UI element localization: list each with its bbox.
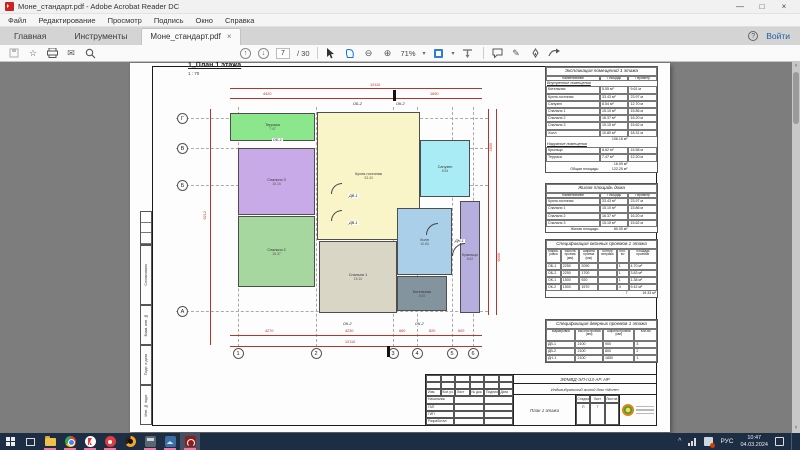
table-row: Терраса7.47 м²12.20 м (546, 154, 657, 161)
table-cell: 1 (634, 355, 657, 362)
table-cell: 1570 (579, 284, 598, 291)
stage-label: Стадия (576, 395, 590, 403)
taskbar-app-chrome[interactable] (60, 433, 80, 450)
table-cell: Площадь проемов (629, 249, 657, 263)
taskbar-app-calculator-app[interactable] (140, 433, 160, 450)
table-cell: ОБ-2 (546, 270, 561, 277)
dimension-text: 660 (399, 329, 405, 333)
dimension-text: 12110 (370, 83, 380, 87)
table-cell: 15.10 м² (600, 108, 629, 115)
table-cell: Подпись (484, 389, 499, 396)
table-cell: 10.80 м² (600, 130, 629, 137)
table-cell: Спальня 1 (546, 108, 600, 115)
table-row: ДН-1210018501 (546, 355, 657, 362)
table-cell: Спальня 2 (546, 115, 600, 122)
table-cell: 12.70 м (628, 101, 657, 108)
tray-chevron-icon[interactable]: ^ (678, 438, 681, 445)
side-strip-label: Согласовано (144, 264, 148, 286)
table-cell (579, 291, 598, 296)
table-cell: 8.54 м² (600, 101, 629, 108)
table-cell: 2250 (561, 270, 580, 277)
tab-home[interactable]: Главная (0, 27, 60, 45)
title-block: Изм.Кол.уч.Лист№ док.ПодписьДатаНачальни… (425, 374, 657, 426)
table-cell (484, 404, 514, 411)
taskbar-app-acrobat-reader[interactable] (180, 433, 200, 450)
role-cell: ГИП (426, 411, 454, 418)
scrollbar-thumb[interactable] (793, 72, 799, 124)
yandex-browser-icon (85, 436, 96, 447)
opening-label: ОБ-1 (272, 138, 283, 142)
table-cell: 3.83 м² (629, 270, 657, 277)
table-cell (629, 167, 658, 172)
table-cell: Ширина проема (мм) (603, 329, 634, 341)
table-cell: 1500 (561, 277, 580, 284)
table-cell: № док. (470, 389, 485, 396)
orange-app-icon (125, 436, 136, 447)
table-cell: Лист (455, 389, 470, 396)
grid-bubble-row: Г (177, 113, 188, 124)
opening-label: ОК-2 (342, 322, 353, 326)
window-title: Моне_стандарт.pdf - Adobe Acrobat Reader… (18, 2, 179, 11)
menu-item[interactable]: Подпись (148, 14, 190, 27)
stage-value: П (576, 403, 590, 425)
table-cell: 7 (617, 291, 629, 296)
table-row: Спецификация дверных проемов 1 этажа (546, 320, 657, 329)
table-cell: 1.38 м² (629, 277, 657, 284)
sheet-value: 7 (590, 403, 604, 425)
table-cell: 1 (617, 263, 629, 270)
table-cell (454, 404, 484, 411)
room-терраса: Терраса7.47 (230, 113, 315, 141)
table-cell: Ширина проема (мм) (579, 249, 598, 263)
room-спальня-3: Спальня 315.15 (238, 148, 315, 215)
window-title-bar: Моне_стандарт.pdf - Adobe Acrobat Reader… (0, 0, 800, 14)
dimension-text: 9212 (203, 211, 207, 219)
role-cell: Разработал (426, 418, 454, 425)
opening-label: ДВ-1 (348, 221, 359, 225)
table-row: ОК-21500157049.42 м² (546, 284, 657, 291)
table-cell: Маркировка (546, 329, 575, 341)
table-cell: Кухня-гостиная (546, 198, 600, 205)
table-cell: 15.58 м (628, 147, 657, 154)
zoom-caret-icon[interactable]: ▾ (423, 50, 426, 57)
object-name: Индивидуальный жилой дом «Моне» (514, 384, 656, 395)
dimension-text: 1690 (430, 92, 438, 96)
tab-tools[interactable]: Инструменты (60, 27, 141, 45)
next-page-icon[interactable]: ↓ (258, 48, 269, 59)
table-cell: 9.61 м (628, 86, 657, 93)
taskbar-app-yandex-browser[interactable] (80, 433, 100, 450)
table-row: ДВ-121009003 (546, 341, 657, 348)
print-icon[interactable] (46, 47, 58, 60)
signature-row: ГИП (426, 411, 513, 418)
table-cell: 122.25 м² (600, 167, 629, 172)
room-area-label: 7.47 (269, 127, 276, 131)
document-code: ЗФМВД-ЭП-п13-АР. НР (514, 375, 656, 384)
table-row: Кухня-гостиная33.43 м²23.97 м (546, 94, 657, 101)
network-icon[interactable] (688, 438, 697, 446)
vertical-scrollbar[interactable]: ˄ ˅ (792, 62, 800, 433)
dimension-text: 12110 (345, 340, 355, 344)
table-cell: Санузел (546, 101, 600, 108)
menu-item[interactable]: Файл (2, 14, 32, 27)
table-cell: 3 (634, 341, 657, 348)
select-tool-icon[interactable] (325, 47, 337, 60)
close-button[interactable]: × (773, 0, 795, 13)
table-cell: 2100 (575, 341, 603, 348)
grid-bubble-column: 1 (233, 348, 244, 359)
dimension-text: 600 (458, 329, 464, 333)
table-cell (426, 382, 441, 389)
room-area-label: 15.15 (272, 182, 281, 186)
table-cell: 2090 (579, 263, 598, 270)
table-cell (598, 263, 617, 270)
dimension-line (230, 98, 482, 99)
company-text-lines (636, 406, 654, 415)
table-cell: 33.43 м² (600, 94, 629, 101)
table-cell (484, 382, 499, 389)
room-санузел: Санузел8.54 (420, 140, 470, 197)
table-cell: 16.37 м² (600, 115, 629, 122)
table-row: Спальня 315.15 м²15.62 м (546, 122, 657, 129)
room-спальня-2: Спальня 216.37 (238, 216, 315, 287)
title-block-signatures: Изм.Кол.уч.Лист№ док.ПодписьДатаНачальни… (426, 375, 514, 425)
dimension-text: 6000 (497, 253, 501, 261)
signature-row: Начальник (426, 396, 513, 403)
sheet-title: 1_План 1 этажа (188, 62, 241, 69)
table-row: Котельная5.55 м²9.61 м (546, 86, 657, 93)
table-cell: ДН-1 (546, 355, 575, 362)
signature-row: Разработал (426, 418, 513, 425)
table-row: Спальня 115.10 м²15.86 м (546, 108, 657, 115)
room-area-label: 8.62 (467, 257, 474, 261)
room-area-label: 16.37 (272, 252, 281, 256)
toolbar-file-group: ☆ ✉ (8, 45, 96, 61)
table-cell: 80.05 м² (600, 227, 629, 232)
table-cell: ОК-2 (546, 284, 561, 291)
side-strip-label: Взам. инв. № (144, 314, 148, 336)
table-cell: 16.20 м (628, 213, 657, 220)
table-row: Спальня 115.10 м²15.86 м (546, 205, 657, 212)
role-cell: Начальник (426, 396, 454, 403)
table-cell: 16.20 м (628, 115, 657, 122)
grid-bubble-column: 6 (468, 348, 479, 359)
room-спальня-1: Спальня 115.10 (319, 241, 397, 313)
taskbar-app-blue-app[interactable] (160, 433, 180, 450)
table-cell: 15.15 м² (600, 122, 629, 129)
file-explorer-icon (45, 438, 56, 446)
menu-item[interactable]: Редактирование (32, 14, 101, 27)
opening-label: ОК-2 (414, 322, 425, 326)
toolbar: ☆ ✉ ↑ ↓ 7 / 30 ⊖ ⊕ 71% ▾ ▾ (0, 45, 800, 62)
table-row: ОК-1150092011.38 м² (546, 277, 657, 284)
table-cell: Кол- во (617, 249, 629, 263)
table-row: ОБ-22250170013.83 м² (546, 270, 657, 277)
table-cell: 1850 (603, 355, 634, 362)
explication-table: Экспликация помещений 1 этажаНаименовани… (545, 66, 658, 173)
zoom-out-icon[interactable]: ⊖ (363, 47, 375, 60)
menu-item[interactable]: Окно (190, 14, 219, 27)
search-icon[interactable] (84, 47, 96, 60)
table-row: Спальня 315.15 м²15.62 м (546, 220, 657, 227)
table-row: 719.33 м² (546, 291, 657, 296)
dimension-line (496, 109, 497, 315)
table-cell: Кол.уч. (441, 389, 456, 396)
toolbar-divider (317, 47, 318, 59)
table-row: ОБ-12250209014.70 м² (546, 263, 657, 270)
calculator-app-icon (145, 436, 156, 447)
sheet-scale: 1 : 70 (188, 71, 199, 76)
table-cell: Спальня 3 (546, 122, 600, 129)
touch-mode-icon[interactable] (462, 47, 474, 60)
table-cell: 19.33 м² (629, 291, 657, 296)
minimize-button[interactable]: — (729, 0, 751, 13)
door-spec-table: Спецификация дверных проемов 1 этажаМарк… (545, 319, 658, 363)
table-row: Холл10.80 м²18.31 м (546, 130, 657, 137)
table-cell: Спальня 3 (546, 220, 600, 227)
page-number-input[interactable]: 7 (276, 48, 290, 59)
table-cell (441, 382, 456, 389)
email-icon[interactable]: ✉ (65, 47, 77, 60)
clock-date: 04.03.2024 (740, 442, 768, 449)
table-cell: 15.86 м (628, 205, 657, 212)
table-cell: 900 (603, 341, 634, 348)
document-viewport[interactable]: 1_План 1 этажа 1 : 70 123456ГВБАТерраса7… (0, 62, 800, 433)
table-cell: Высота проема (мм) (561, 249, 580, 263)
table-cell: Холл (546, 130, 600, 137)
table-cell (441, 375, 456, 382)
grid-bubble-column: 5 (447, 348, 458, 359)
tab-close-icon[interactable]: × (227, 29, 232, 45)
table-cell: 18.31 м (628, 130, 657, 137)
taskbar-app-orange-app[interactable] (120, 433, 140, 450)
opening-label: ОК-2 (395, 102, 406, 106)
side-strip-cell: Взам. инв. № (140, 305, 152, 345)
menu-bar: ФайлРедактированиеПросмотрПодписьОкноСпр… (0, 14, 800, 27)
dimension-line (230, 346, 482, 347)
table-cell (455, 375, 470, 382)
table-cell: 800 (603, 348, 634, 355)
sign-in-button[interactable]: Войти (766, 31, 790, 41)
table-cell: Котельная (546, 86, 600, 93)
window-spec-table: Спецификация оконных проемов 1 этажаМарк… (545, 239, 658, 298)
sheet-label: Лист (590, 395, 604, 403)
room-area-label: 10.80 (420, 242, 429, 246)
side-strip-label: Подп. и дата (144, 354, 148, 375)
table-cell: Контур витража (598, 249, 617, 263)
room-холл: Холл10.80 (397, 208, 452, 275)
hand-tool-icon[interactable] (344, 47, 356, 60)
table-cell: Дата (499, 389, 514, 396)
section-marker (387, 346, 390, 357)
show-desktop-button[interactable] (791, 433, 794, 450)
taskbar-app-red-app[interactable] (100, 433, 120, 450)
table-row: Жилая площадь дома (546, 184, 657, 193)
grid-bubble-row: В (177, 143, 188, 154)
table-cell: ДВ-1 (546, 341, 575, 348)
side-strip-cell: Инв. № подл. (140, 385, 152, 425)
table-cell (454, 411, 484, 418)
table-cell: Терраса (546, 154, 600, 161)
scroll-down-icon[interactable]: ˅ (792, 424, 800, 433)
role-cell: ГАП (426, 404, 454, 411)
table-cell: 4.70 м² (629, 263, 657, 270)
table-cell (561, 291, 580, 296)
menu-item[interactable]: Справка (219, 14, 260, 27)
page-view-caret-icon[interactable]: ▾ (452, 50, 455, 57)
fill-sign-icon[interactable]: ✎ (510, 47, 522, 60)
tab-document-label: Моне_стандарт.pdf (150, 29, 220, 45)
table-cell: 12.20 м (628, 154, 657, 161)
grid-bubble-column: 2 (311, 348, 322, 359)
ink-signature-icon[interactable] (529, 47, 541, 60)
dimension-text: 4230 (345, 329, 353, 333)
table-row: Общая площадь:122.25 м² (546, 167, 657, 172)
table-cell (484, 375, 499, 382)
table-row: ДВ-221008002 (546, 348, 657, 355)
table-cell (598, 291, 617, 296)
table-cell: 23.97 м (628, 94, 657, 101)
table-cell: 2250 (561, 263, 580, 270)
table-cell: Жилая площадь: (546, 227, 600, 232)
room-area-label: 5.55 (419, 294, 426, 298)
start-button[interactable] (0, 433, 20, 450)
table-cell: 2 (634, 348, 657, 355)
table-cell: Общая площадь: (546, 167, 600, 172)
change-row (426, 375, 513, 382)
section-marker (393, 90, 396, 101)
table-cell: 15.62 м (628, 220, 657, 227)
table-cell: 23.97 м (628, 198, 657, 205)
save-icon[interactable] (8, 47, 20, 60)
grid-bubble-column: 4 (412, 348, 423, 359)
table-row: Спальня 216.37 м²16.20 м (546, 213, 657, 220)
table-row: Спецификация оконных проемов 1 этажа (546, 240, 657, 249)
signature-row: ГАП (426, 404, 513, 411)
red-app-icon (105, 436, 116, 447)
table-row: Экспликация помещений 1 этажа (546, 67, 657, 76)
maximize-button[interactable]: □ (751, 0, 773, 13)
stage-grid: Стадия Лист Листов П 7 (576, 395, 620, 425)
zoom-level-select[interactable]: 71% (401, 49, 416, 58)
comment-icon[interactable] (491, 47, 503, 60)
living-area-table: Жилая площадь домаНаименованиеПлощадьПер… (545, 183, 658, 233)
table-row: МаркировкаВысота проема (мм)Ширина проем… (546, 329, 657, 341)
table-cell (629, 227, 658, 232)
notification-badge-icon[interactable] (704, 437, 713, 446)
table-cell (470, 375, 485, 382)
sheets-label: Листов (605, 395, 619, 403)
taskbar-app-file-explorer[interactable] (40, 433, 60, 450)
dimension-text: 4270 (265, 329, 273, 333)
table-cell: 7.47 м² (600, 154, 629, 161)
table-cell: 2100 (575, 355, 603, 362)
table-cell: 1500 (561, 284, 580, 291)
table-cell: Спальня 2 (546, 213, 600, 220)
table-cell: Спальня 1 (546, 205, 600, 212)
action-center-icon[interactable] (775, 437, 784, 446)
table-cell: 1 (617, 277, 629, 284)
star-icon[interactable]: ☆ (27, 47, 39, 60)
room-area-label: 8.54 (442, 169, 449, 173)
dimension-text: 1800 (489, 143, 493, 151)
room-крыльцо: Крыльцо8.62 (460, 201, 480, 313)
table-cell: 1 (617, 270, 629, 277)
page-view-icon[interactable] (433, 47, 445, 60)
table-cell (598, 284, 617, 291)
toolbar-tools-group: ✎ (483, 45, 560, 61)
table-cell (426, 375, 441, 382)
room-area-label: 33.43 (364, 176, 373, 180)
previous-page-icon[interactable]: ↑ (240, 48, 251, 59)
side-strip-label: Инв. № подл. (144, 394, 148, 417)
pdf-page[interactable]: 1_План 1 этажа 1 : 70 123456ГВБАТерраса7… (130, 63, 670, 432)
dimension-line (210, 109, 211, 345)
table-cell: Спецификация дверных проемов 1 этажа (546, 320, 657, 329)
table-cell (499, 375, 514, 382)
system-tray: ^ РУС 10:47 04.03.2024 (678, 433, 800, 450)
change-row (426, 382, 513, 389)
grid-bubble-row: А (177, 306, 188, 317)
table-cell: Экспликация помещений 1 этажа (546, 67, 657, 76)
dimension-text: 4420 (263, 92, 271, 96)
table-cell (454, 418, 484, 425)
opening-label: ОБ-2 (352, 102, 363, 106)
table-row: Спальня 216.37 м²16.20 м (546, 115, 657, 122)
table-row: Санузел8.54 м²12.70 м (546, 101, 657, 108)
table-cell: Высота проема (мм) (575, 329, 603, 341)
table-cell: 9.42 м² (629, 284, 657, 291)
table-cell: Кухня-гостиная (546, 94, 600, 101)
send-sign-icon[interactable] (548, 47, 560, 60)
table-cell: 15.62 м (628, 122, 657, 129)
table-cell: Жилая площадь дома (546, 184, 657, 193)
table-cell: Кол-во (634, 329, 657, 341)
table-cell (470, 382, 485, 389)
side-strip-cell: Подп. и дата (140, 345, 152, 385)
opening-label: ДВ-1 (348, 194, 359, 198)
table-cell: 1700 (579, 270, 598, 277)
table-cell (598, 270, 617, 277)
table-cell: Изм. (426, 389, 441, 396)
table-cell: 5.55 м² (600, 86, 629, 93)
room-котельная: Котельная5.55 (397, 276, 447, 311)
table-cell: 8.62 м² (600, 147, 629, 154)
menu-item[interactable]: Просмотр (102, 14, 148, 27)
table-cell: ОК-1 (546, 277, 561, 284)
dimension-line (230, 335, 482, 336)
table-row: Марки- ровкаВысота проема (мм)Ширина про… (546, 249, 657, 263)
help-icon[interactable]: ? (748, 31, 758, 41)
table-row: Крыльцо8.62 м²15.58 м (546, 147, 657, 154)
table-cell: 33.43 м² (600, 198, 629, 205)
language-indicator[interactable]: РУС (720, 438, 733, 445)
toolbar-divider (483, 47, 484, 59)
side-mini-grid (140, 211, 152, 245)
table-cell (546, 291, 561, 296)
table-cell: 920 (579, 277, 598, 284)
scroll-up-icon[interactable]: ˄ (792, 62, 800, 71)
clock[interactable]: 10:47 04.03.2024 (740, 435, 768, 448)
table-row: Жилая площадь:80.05 м² (546, 227, 657, 232)
blue-app-icon (165, 436, 176, 447)
side-strip-cell: Согласовано (140, 245, 152, 305)
zoom-in-icon[interactable]: ⊕ (382, 47, 394, 60)
signature-header-row: Изм.Кол.уч.Лист№ док.ПодписьДата (426, 389, 513, 396)
table-cell (455, 382, 470, 389)
tab-document[interactable]: Моне_стандарт.pdf × (141, 28, 240, 45)
task-view-button[interactable] (20, 433, 40, 450)
